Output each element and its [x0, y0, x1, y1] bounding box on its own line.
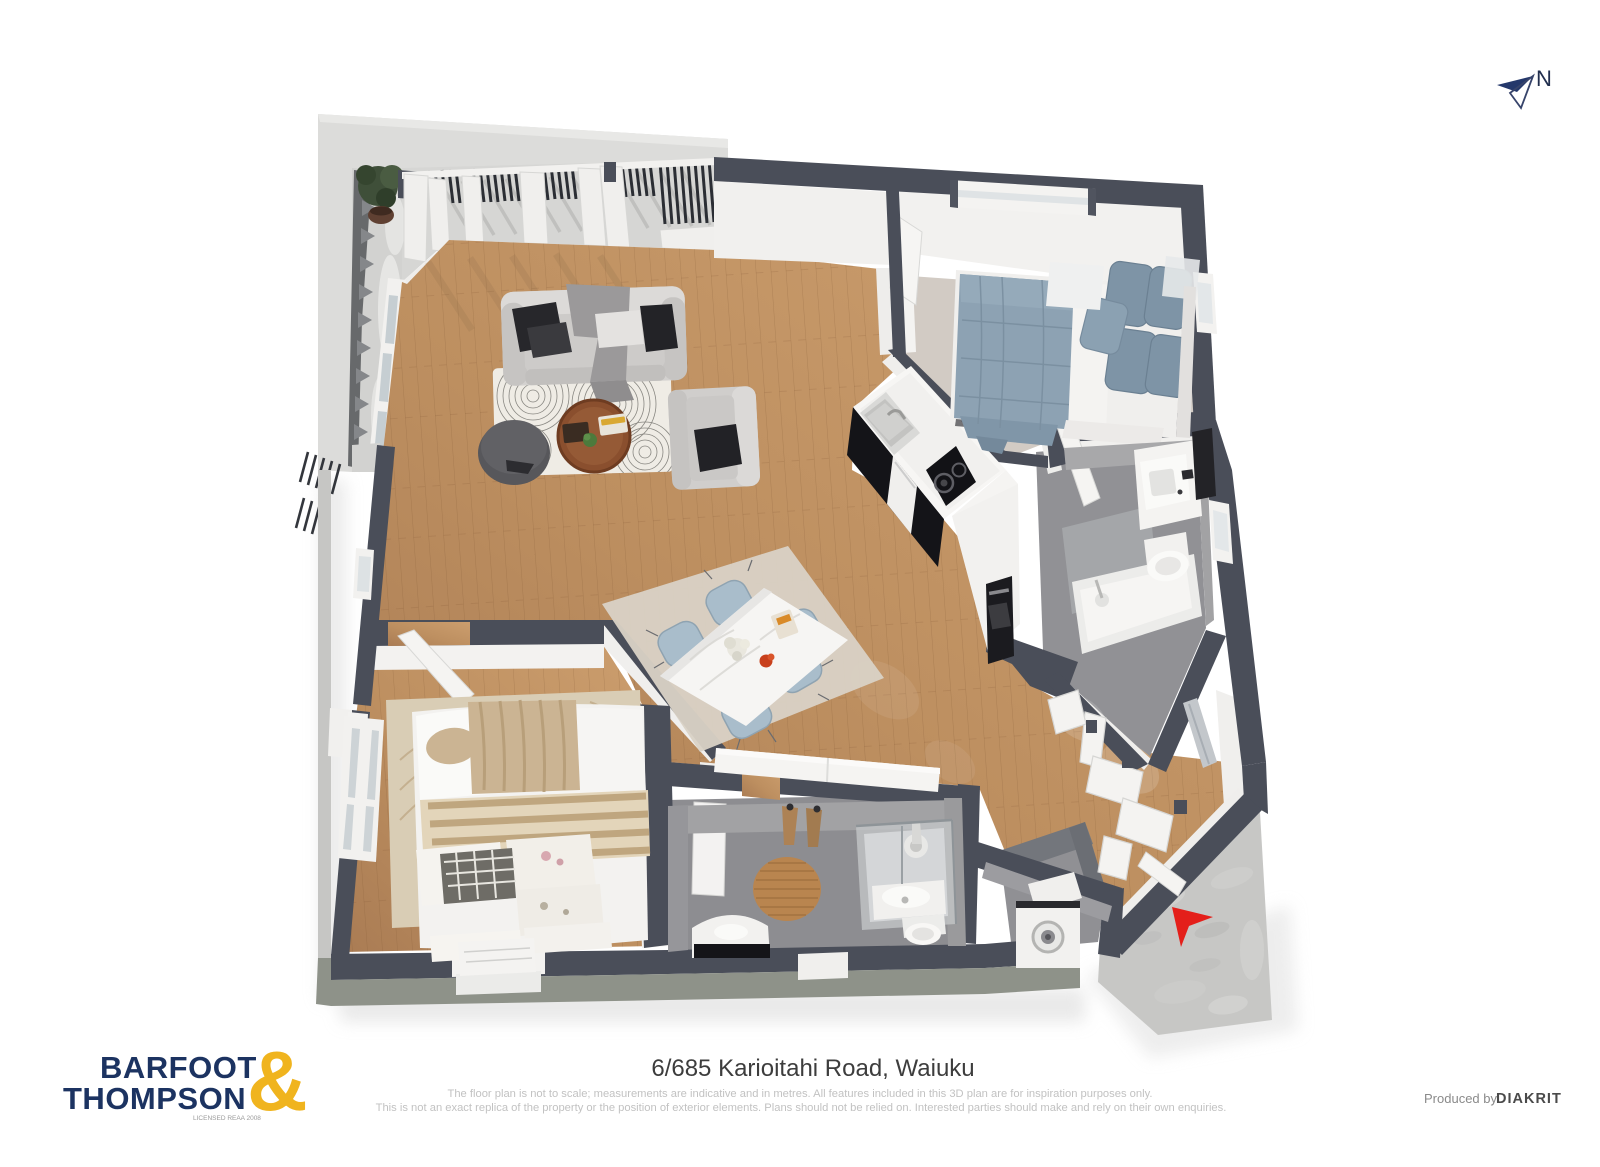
svg-text:LICENSED REAA 2008: LICENSED REAA 2008 [193, 1115, 261, 1122]
svg-text:This is not an exact replica o: This is not an exact replica of the prop… [376, 1102, 1227, 1114]
svg-text:The floor plan is not to scale: The floor plan is not to scale; measurem… [448, 1088, 1153, 1100]
svg-text:BARFOOT: BARFOOT [100, 1050, 257, 1085]
svg-text:&: & [247, 1034, 308, 1128]
svg-text:N: N [1536, 66, 1552, 91]
svg-text:THOMPSON: THOMPSON [63, 1081, 246, 1116]
svg-text:6/685 Karioitahi Road, Waiuku: 6/685 Karioitahi Road, Waiuku [651, 1055, 974, 1082]
svg-text:DIAKRIT: DIAKRIT [1496, 1091, 1562, 1107]
svg-text:Produced by: Produced by [1424, 1091, 1497, 1106]
